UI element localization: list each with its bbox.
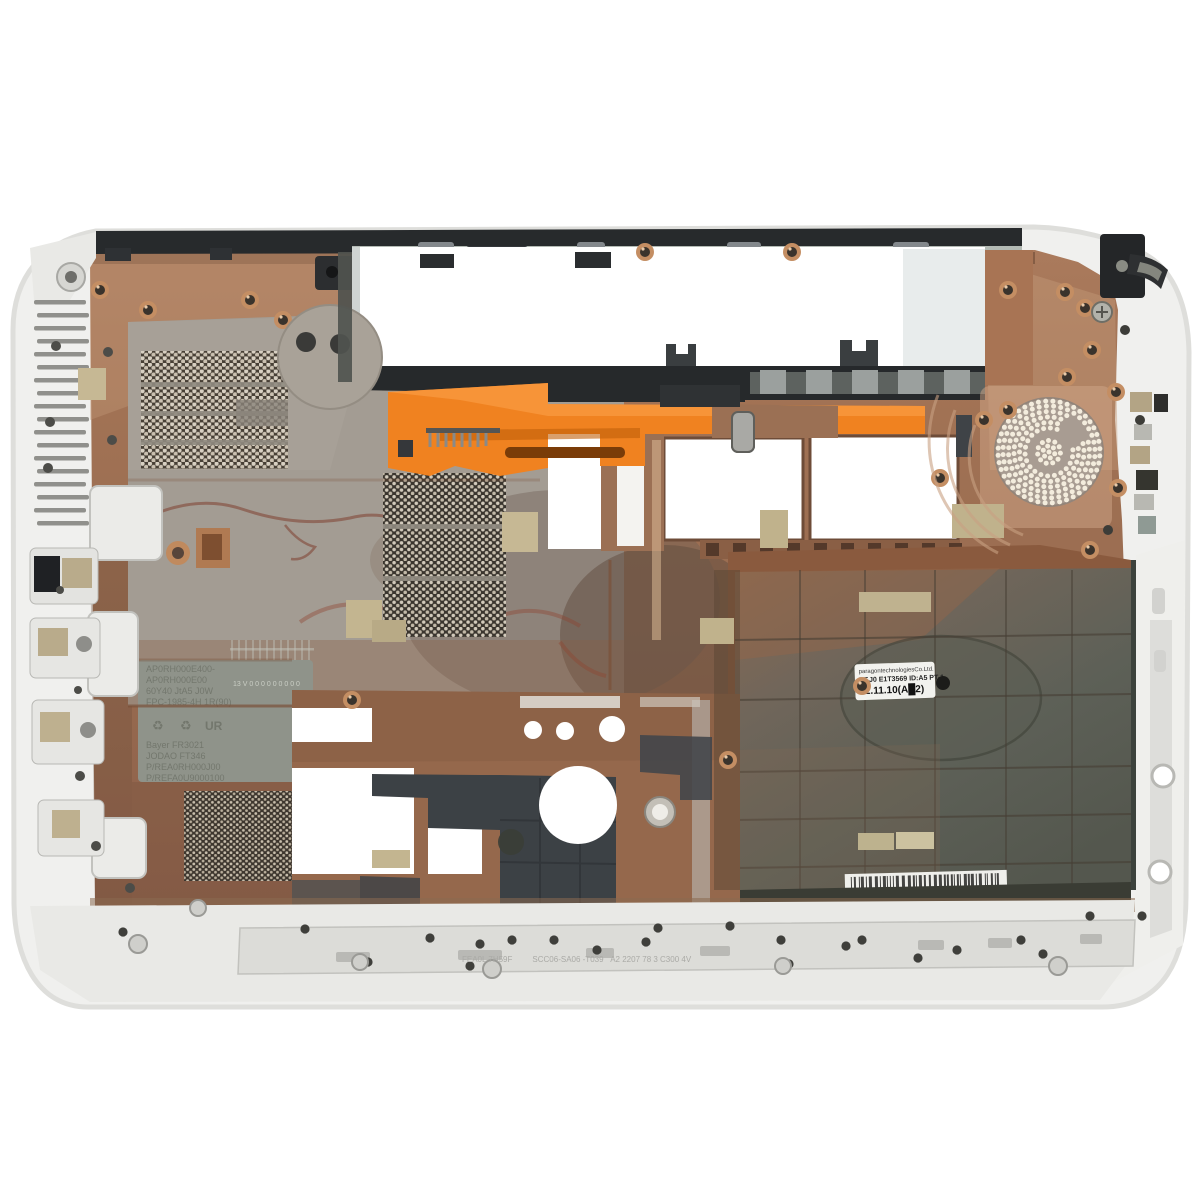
svg-text:FEA0L 7H59F SCC06-SA06: FEA0L 7H59F SCC06-SA06 -T039 A2 2207 78 … — [462, 955, 692, 964]
svg-text:♻: ♻ — [152, 718, 164, 733]
svg-text:Bayer FR3021: Bayer FR3021 — [146, 740, 204, 750]
svg-text:P/REFA0U9000100: P/REFA0U9000100 — [146, 773, 225, 783]
svg-text:60Y40 JtA5 J0W: 60Y40 JtA5 J0W — [146, 686, 214, 696]
svg-text:UR: UR — [205, 719, 223, 733]
svg-text:P/REA0RH000J00: P/REA0RH000J00 — [146, 762, 221, 772]
svg-text:♻: ♻ — [180, 718, 192, 733]
svg-text:AP0RH000E400-: AP0RH000E400- — [146, 664, 215, 674]
svg-text:JODAO FT346: JODAO FT346 — [146, 751, 206, 761]
svg-text:13 V 0 0 0 0 0 0 0 0 0: 13 V 0 0 0 0 0 0 0 0 0 — [233, 681, 300, 688]
svg-text:AP0RH000E00: AP0RH000E00 — [146, 675, 207, 685]
